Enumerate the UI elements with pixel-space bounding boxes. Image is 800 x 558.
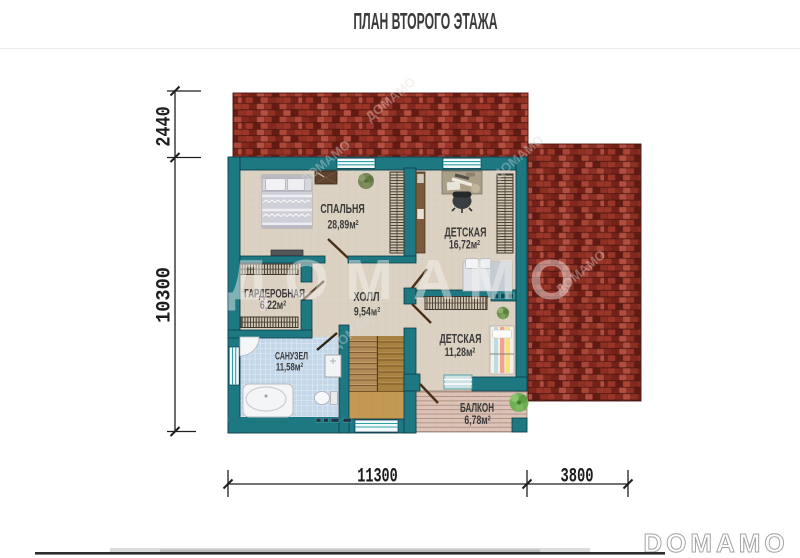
svg-text:САНУЗЕЛ: САНУЗЕЛ [275, 350, 308, 362]
svg-text:ПЛАН ВТОРОГО ЭТАЖА: ПЛАН ВТОРОГО ЭТАЖА [353, 8, 497, 34]
svg-text:О: О [284, 248, 328, 312]
svg-text:DOMAMO: DOMAMO [643, 528, 788, 558]
svg-text:2440: 2440 [153, 106, 176, 146]
svg-text:ДЕТСКАЯ: ДЕТСКАЯ [445, 226, 487, 240]
svg-text:6,78м2: 6,78м2 [464, 415, 491, 428]
svg-text:28,89м2: 28,89м2 [327, 219, 359, 232]
svg-text:М: М [468, 248, 515, 312]
svg-text:11,58м2: 11,58м2 [276, 361, 303, 372]
svg-text:3800: 3800 [560, 466, 593, 488]
svg-text:М: М [345, 248, 392, 312]
svg-text:А: А [413, 248, 454, 312]
svg-text:СПАЛЬНЯ: СПАЛЬНЯ [320, 203, 365, 217]
svg-text:10300: 10300 [153, 267, 176, 323]
svg-text:ДЕТСКАЯ: ДЕТСКАЯ [440, 333, 482, 347]
svg-text:Д: Д [228, 248, 269, 312]
svg-text:11,28м2: 11,28м2 [445, 347, 476, 360]
svg-text:БАЛКОН: БАЛКОН [460, 401, 494, 415]
svg-text:11300: 11300 [357, 466, 397, 488]
